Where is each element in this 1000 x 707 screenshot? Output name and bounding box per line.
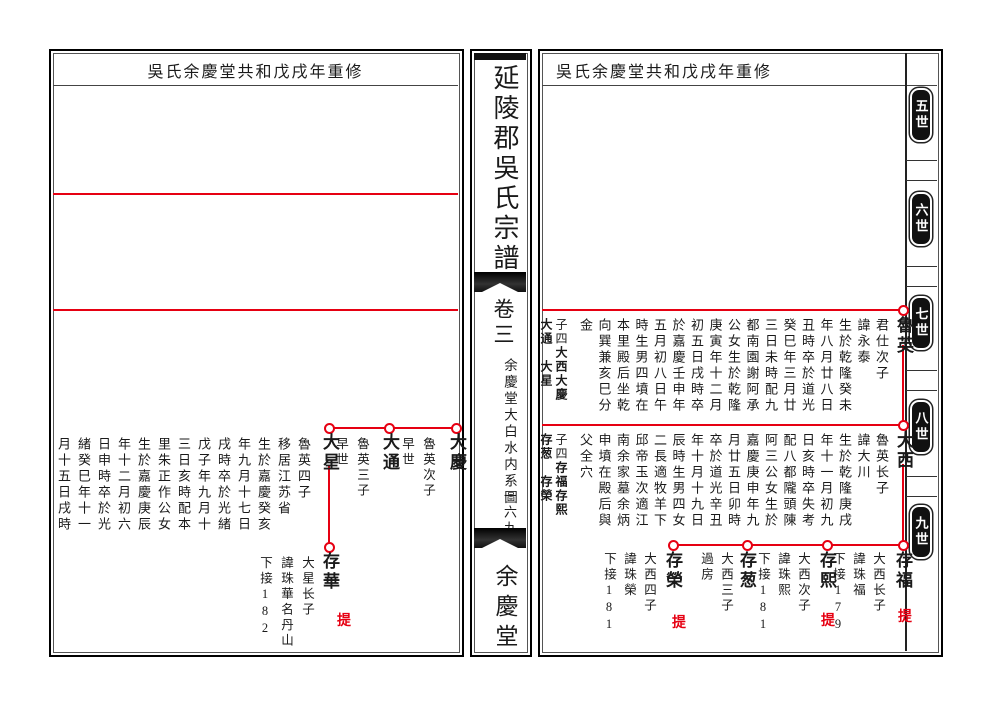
text-column: 年十一月初九 (816, 433, 835, 529)
person-name-daqing: 大慶 (447, 433, 466, 473)
text-column: 公女生於乾隆 (724, 318, 743, 414)
text-column: 二長適牧羊下 (650, 433, 669, 529)
text-column: 於嘉慶壬申年 (668, 318, 687, 414)
text-column: 魯英长子 (872, 433, 891, 529)
text-column: 移居江苏省 (273, 437, 293, 533)
text-column: 戌時卒於光緒 (213, 437, 233, 533)
text-column: 辰時生男四女 (668, 433, 687, 529)
strip-rule (906, 286, 937, 287)
node-cunfu (898, 540, 909, 551)
text-column: 配八都隴頭陳 (779, 433, 798, 529)
text-column: 三日亥時配本 (173, 437, 193, 533)
generation-tab-5: 五世 (910, 88, 932, 142)
person-info-daqing: 魯英次子早世 (396, 437, 438, 499)
text-column: 嘉慶庚申年九 (742, 433, 761, 529)
sons-label: 子四 (554, 433, 568, 461)
fishtail-ornament (474, 528, 526, 548)
ti-mark-cunxi: 提 (821, 610, 835, 630)
gen7-line-right (542, 309, 903, 311)
node-luying (898, 305, 909, 316)
text-column: 南余家墓余炳 (613, 433, 632, 529)
text-column: 下接182 (254, 556, 275, 649)
person-name-daxing: 大星 (320, 433, 339, 473)
text-column: 里朱正作公女 (153, 437, 173, 533)
text-column: 君仕次子 (872, 318, 891, 414)
fishtail-notch (482, 283, 518, 292)
text-column: 諱永泰 (853, 318, 872, 414)
strip-rule (906, 160, 937, 161)
person-bio-luying: 君仕次子諱永泰生於乾隆癸未年八月廿八日丑時卒於道光癸巳年三月廿三日未時配九都南園… (560, 318, 890, 414)
node-cuncong (742, 540, 753, 551)
text-column: 癸巳年三月廿 (779, 318, 798, 414)
right-header-rule (542, 85, 937, 86)
text-column: 緒癸巳年十一 (73, 437, 93, 533)
text-column: 大星长子 (296, 556, 317, 649)
node-cunrong (668, 540, 679, 551)
strip-rule (906, 266, 937, 267)
text-column: 生於嘉慶癸亥 (253, 437, 273, 533)
strip-rule (906, 390, 937, 391)
sons-annotation-daxi: 子四存福存熙 存葱 存榮 (536, 433, 568, 517)
sons-col-b: 大通 大星 (538, 318, 553, 402)
generation-tab-8: 八世 (910, 400, 932, 454)
gen8-line-right (542, 424, 903, 426)
person-bio-daxing: 魯英四子移居江苏省生於嘉慶癸亥年九月十七日戌時卒於光緒戊子年九月十三日亥時配本里… (53, 437, 313, 533)
spine-title: 延陵郡吳氏宗譜 (486, 64, 523, 274)
text-column: 卒於道光辛丑 (705, 433, 724, 529)
text-column: 五月初八日午 (650, 318, 669, 414)
left-page-header: 吳氏余慶堂共和戊戌年重修 (53, 58, 458, 82)
text-column: 三日未時配九 (761, 318, 780, 414)
person-name-datong: 大通 (380, 433, 399, 473)
text-column: 年八月廿八日 (816, 318, 835, 414)
text-column: 都南園謝阿承 (742, 318, 761, 414)
text-column: 時生男四墳在 (631, 318, 650, 414)
right-page-header: 吳氏余慶堂共和戊戌年重修 (556, 58, 772, 82)
person-name-cunfu: 存福 (893, 551, 912, 591)
text-column: 丑時卒於道光 (798, 318, 817, 414)
gen6-line-left (53, 193, 458, 195)
person-name-cunrong: 存榮 (663, 551, 682, 591)
person-info-cunrong: 大西四子諱珠榮下接181 (597, 552, 659, 634)
text-column: 年十二月初六 (113, 437, 133, 533)
text-column: 申墳在殿后與 (594, 433, 613, 529)
text-column: 大西四子 (639, 552, 659, 634)
text-column: 諱珠福 (848, 552, 868, 634)
fishtail-notch (482, 539, 518, 548)
sons-col-a: 子四存福存熙 (553, 433, 568, 517)
text-column: 諱珠榮 (619, 552, 639, 634)
text-column: 魯英三子 (351, 437, 372, 499)
text-column: 大西长子 (868, 552, 888, 634)
text-column: 下接181 (753, 552, 773, 634)
node-cunxi (822, 540, 833, 551)
spine-top-bar (474, 53, 526, 60)
text-column: 日亥時卒失考 (798, 433, 817, 529)
text-column: 月十五日戌時 (53, 437, 73, 533)
strip-rule (906, 180, 937, 181)
person-name-cunxi: 存熙 (817, 551, 836, 591)
gen9-line-right (673, 544, 903, 546)
spine-volume: 卷三 (488, 298, 518, 348)
text-column: 下接181 (599, 552, 619, 634)
ti-mark-cunrong: 提 (672, 612, 686, 632)
person-name-luying: 魯英 (894, 316, 913, 356)
text-column: 初五日戌時卒 (687, 318, 706, 414)
person-info-cuncong: 大西三子過房 (694, 552, 736, 614)
text-column: 年十月十九日 (687, 433, 706, 529)
text-column: 年九月十七日 (233, 437, 253, 533)
spine-hall-name: 余慶堂 (487, 564, 521, 654)
text-column: 金 (576, 318, 595, 414)
ti-mark-cunhua: 提 (337, 610, 351, 630)
strip-rule (906, 370, 937, 371)
person-info-cunhua: 大星长子諱珠華名丹山下接182 (255, 556, 317, 649)
sons-names: 大西大慶 (554, 346, 568, 402)
person-bio-daxi: 魯英长子諱大川生於乾隆庚戌年十一月初九日亥時卒失考配八都隴頭陳阿三公女生於嘉慶庚… (560, 433, 890, 529)
text-column: 諱珠熙 (773, 552, 793, 634)
sons-col-a: 子四大西大慶 (553, 318, 568, 402)
text-column: 邱帝玉次適江 (631, 433, 650, 529)
person-name-cunhua: 存華 (320, 552, 339, 592)
spine-section: 余慶堂大白水内系圖 (499, 358, 519, 507)
text-column: 向巽兼亥巳分 (594, 318, 613, 414)
ti-mark-cunfu: 提 (898, 606, 912, 626)
sons-names: 存福存熙 (554, 461, 568, 517)
text-column: 庚寅年十二月 (705, 318, 724, 414)
generation-tab-7: 七世 (910, 296, 932, 350)
text-column: 大西次子 (793, 552, 813, 634)
text-column: 戊子年九月十 (193, 437, 213, 533)
strip-rule (906, 476, 937, 477)
text-column: 過房 (696, 552, 716, 614)
text-column: 生於嘉慶庚辰 (133, 437, 153, 533)
text-column: 魯英四子 (293, 437, 313, 533)
text-column: 生於乾隆庚戌 (835, 433, 854, 529)
generation-tab-9: 九世 (910, 505, 932, 559)
text-column: 父全穴 (576, 433, 595, 529)
text-column: 本里殿后坐乾 (613, 318, 632, 414)
text-column: 日申時卒於光 (93, 437, 113, 533)
text-column: 阿三公女生於 (761, 433, 780, 529)
text-column: 魯英次子 (417, 437, 438, 499)
person-info-cunxi: 大西次子諱珠熙下接181 (751, 552, 813, 634)
strip-rule (906, 496, 937, 497)
text-column: 諱大川 (853, 433, 872, 529)
text-column: 生於乾隆癸未 (835, 318, 854, 414)
text-column: 諱珠華名丹山 (275, 556, 296, 649)
person-name-cuncong: 存葱 (737, 551, 756, 591)
sons-label: 子四 (554, 318, 568, 346)
genealogy-spread: { "colors": {"line_red": "#e60012", "ink… (0, 0, 1000, 707)
left-header-rule (53, 85, 458, 86)
node-daxi (898, 420, 909, 431)
fishtail-ornament (474, 272, 526, 292)
text-column: 月廿五日卯時 (724, 433, 743, 529)
sons-annotation-luying: 子四大西大慶 大通 大星 (536, 318, 568, 402)
person-name-daxi: 大西 (894, 431, 913, 471)
text-column: 大西三子 (716, 552, 736, 614)
sons-col-b: 存葱 存榮 (538, 433, 553, 517)
gen7-line-left (53, 309, 458, 311)
luying-descent-line (902, 345, 904, 425)
daxi-descent-line (902, 464, 904, 545)
text-column: 早世 (396, 437, 417, 499)
generation-tab-6: 六世 (910, 192, 932, 246)
